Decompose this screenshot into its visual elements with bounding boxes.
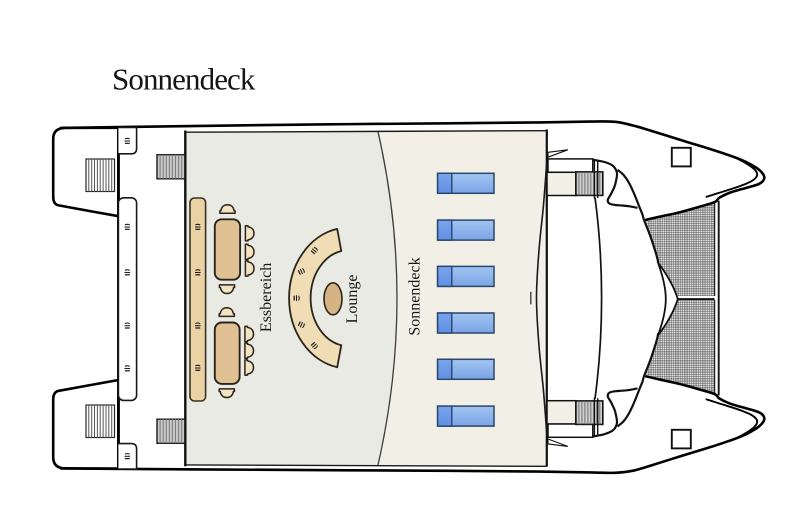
- svg-text:Sonnendeck: Sonnendeck: [112, 62, 256, 97]
- svg-text:Sonnendeck: Sonnendeck: [406, 257, 423, 335]
- svg-text:Essbereich: Essbereich: [258, 263, 275, 332]
- svg-text:Lounge: Lounge: [344, 274, 361, 323]
